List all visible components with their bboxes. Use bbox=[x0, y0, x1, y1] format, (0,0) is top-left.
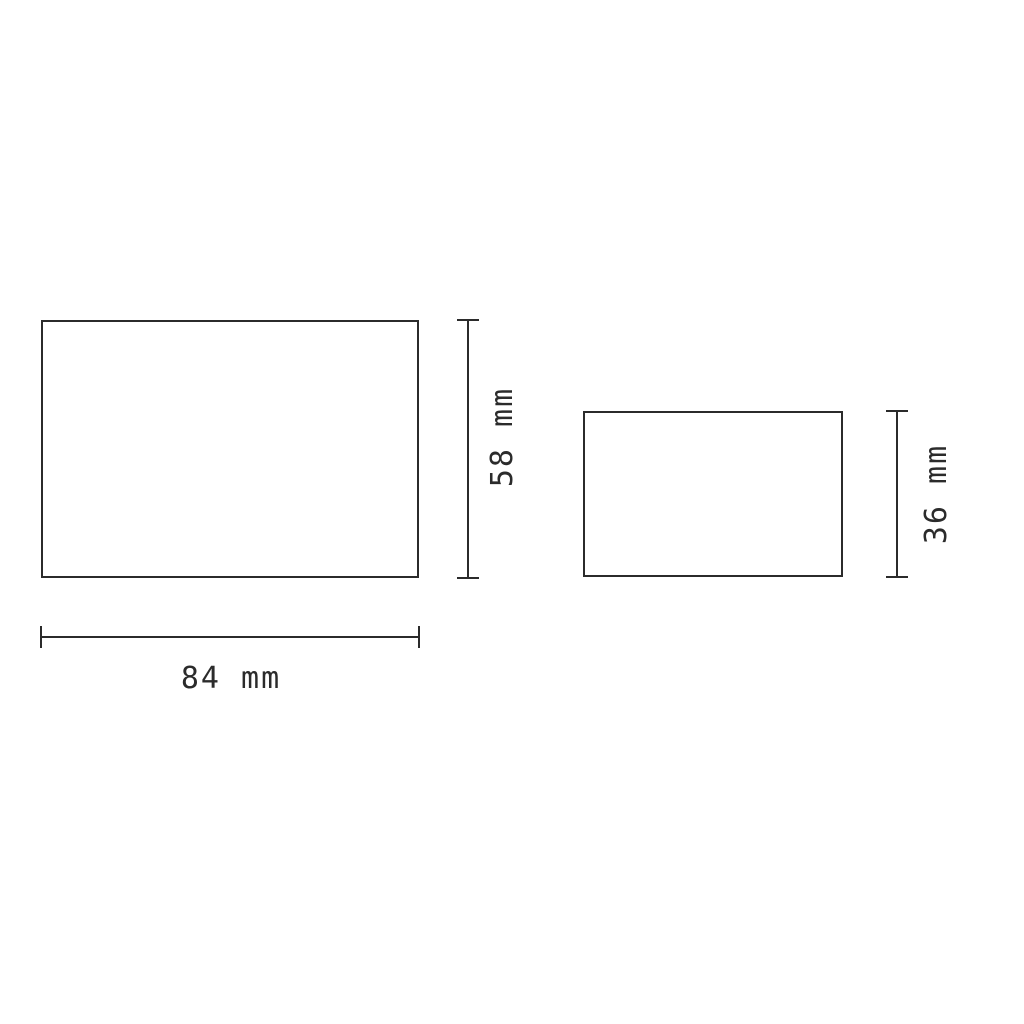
small-rectangle-outline bbox=[583, 411, 843, 577]
large-rect-width-label: 84 mm bbox=[181, 664, 281, 694]
large-rectangle-outline bbox=[41, 320, 419, 578]
dimension-tick-top bbox=[457, 319, 479, 321]
dimension-tick-left bbox=[40, 626, 42, 648]
dimension-tick-right bbox=[418, 626, 420, 648]
large-rect-height-label: 58 mm bbox=[488, 387, 518, 487]
dimension-line-horizontal bbox=[41, 636, 419, 638]
dimension-tick-bottom bbox=[457, 577, 479, 579]
dimension-tick-top bbox=[886, 410, 908, 412]
dimension-tick-bottom bbox=[886, 576, 908, 578]
small-rect-height-label: 36 mm bbox=[922, 444, 952, 544]
dimension-line-vertical bbox=[467, 320, 469, 578]
dimension-line-vertical bbox=[896, 411, 898, 577]
technical-drawing: 58 mm 84 mm 36 mm bbox=[0, 0, 1024, 1024]
